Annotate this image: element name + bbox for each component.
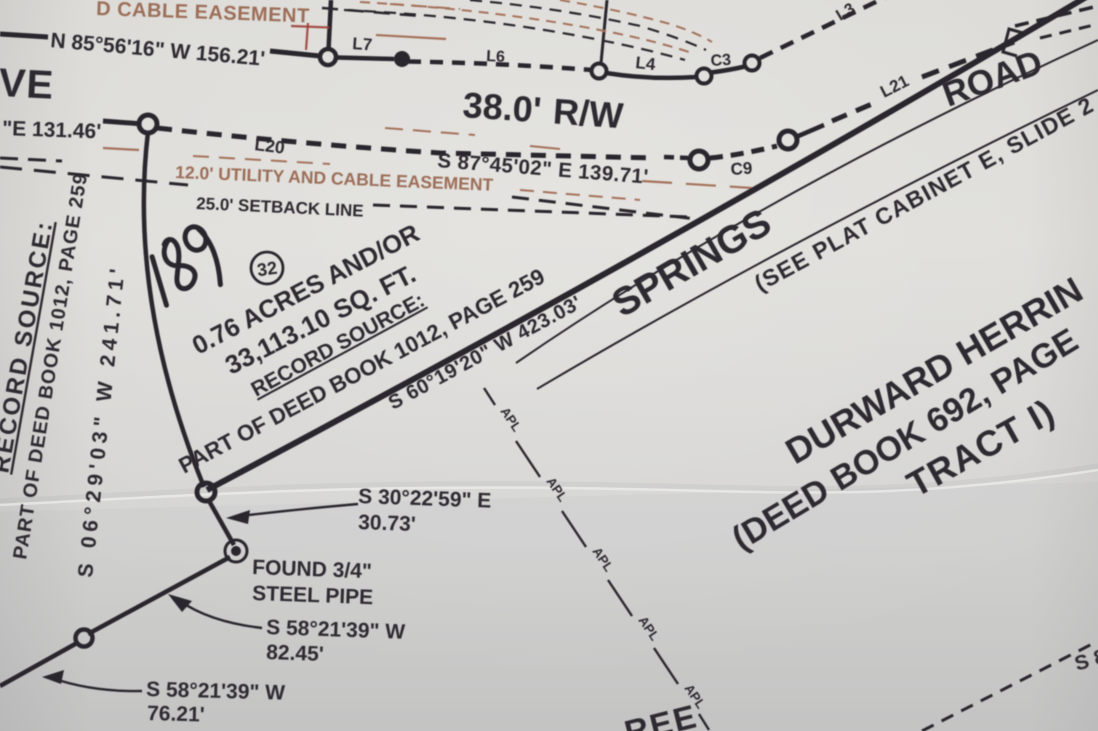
svg-text:82.45': 82.45'	[266, 641, 324, 666]
svg-text:30.73': 30.73'	[358, 511, 416, 536]
svg-text:"E 131.46': "E 131.46'	[2, 117, 102, 143]
svg-text:L20: L20	[254, 134, 287, 158]
svg-text:S 58°21'39" W: S 58°21'39" W	[266, 616, 406, 644]
svg-text:32: 32	[256, 258, 279, 281]
svg-text:C9: C9	[730, 159, 753, 179]
svg-text:IVE: IVE	[0, 60, 55, 107]
svg-text:C3: C3	[710, 52, 732, 70]
svg-text:76.21': 76.21'	[147, 702, 205, 726]
svg-text:L4: L4	[635, 53, 657, 74]
svg-text:L7: L7	[352, 34, 373, 54]
svg-text:S 58°21'39" W: S 58°21'39" W	[146, 678, 286, 705]
svg-text:STEEL PIPE: STEEL PIPE	[252, 582, 374, 609]
svg-text:FOUND 3/4": FOUND 3/4"	[252, 556, 372, 583]
svg-text:S 30°22'59" E: S 30°22'59" E	[358, 485, 492, 513]
svg-text:L6: L6	[486, 48, 506, 66]
